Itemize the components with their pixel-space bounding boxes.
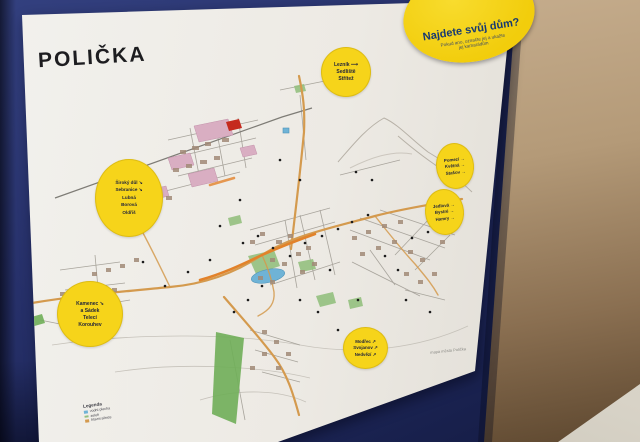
map-poster: POLIČKA Lezník ⟶ Sedliště Střítež Široký… <box>0 0 640 442</box>
village-label: Střítež <box>338 76 353 82</box>
village-label: Svojanov ↗ <box>353 345 377 351</box>
water-swatch-icon <box>84 410 88 413</box>
village-label: a Sádek <box>81 308 100 314</box>
village-label: Lezník ⟶ <box>334 62 358 68</box>
village-circle-south: Modřec ↗ Svojanov ↗ Nedvězí ↗ <box>343 327 388 369</box>
photo-scene: POLIČKA Lezník ⟶ Sedliště Střítež Široký… <box>0 0 640 442</box>
village-circle-north: Lezník ⟶ Sedliště Střítež <box>321 47 371 97</box>
street-grid <box>40 80 455 420</box>
map-legend: Legenda vodní plocha zeleň hlavní silnic… <box>83 400 112 423</box>
village-label: Borová <box>121 202 137 208</box>
village-label: Hamry → <box>435 215 455 223</box>
village-label: Sebranice ↘ <box>115 187 142 193</box>
village-label: Sedliště <box>336 69 355 75</box>
village-label: Lubná <box>122 195 136 201</box>
road-swatch-icon <box>85 419 89 422</box>
poster-wrapper: POLIČKA Lezník ⟶ Sedliště Střítež Široký… <box>0 0 640 442</box>
village-label: Oldřiš <box>122 210 135 216</box>
green-areas <box>28 84 363 424</box>
village-label: Modřec ↗ <box>355 339 376 345</box>
village-label: Korouhev <box>78 322 101 328</box>
village-circle-west: Široký důl ↘ Sebranice ↘ Lubná Borová Ol… <box>95 159 163 237</box>
village-label: Kamenec ➘ <box>76 301 104 307</box>
village-label: Stašov → <box>445 169 465 177</box>
village-label: Široký důl ↘ <box>115 180 142 186</box>
village-label: Telecí <box>83 315 97 321</box>
green-swatch-icon <box>84 415 88 418</box>
village-label: Nedvězí ↗ <box>355 352 377 358</box>
village-circle-southwest: Kamenec ➘ a Sádek Telecí Korouhev <box>57 281 123 347</box>
